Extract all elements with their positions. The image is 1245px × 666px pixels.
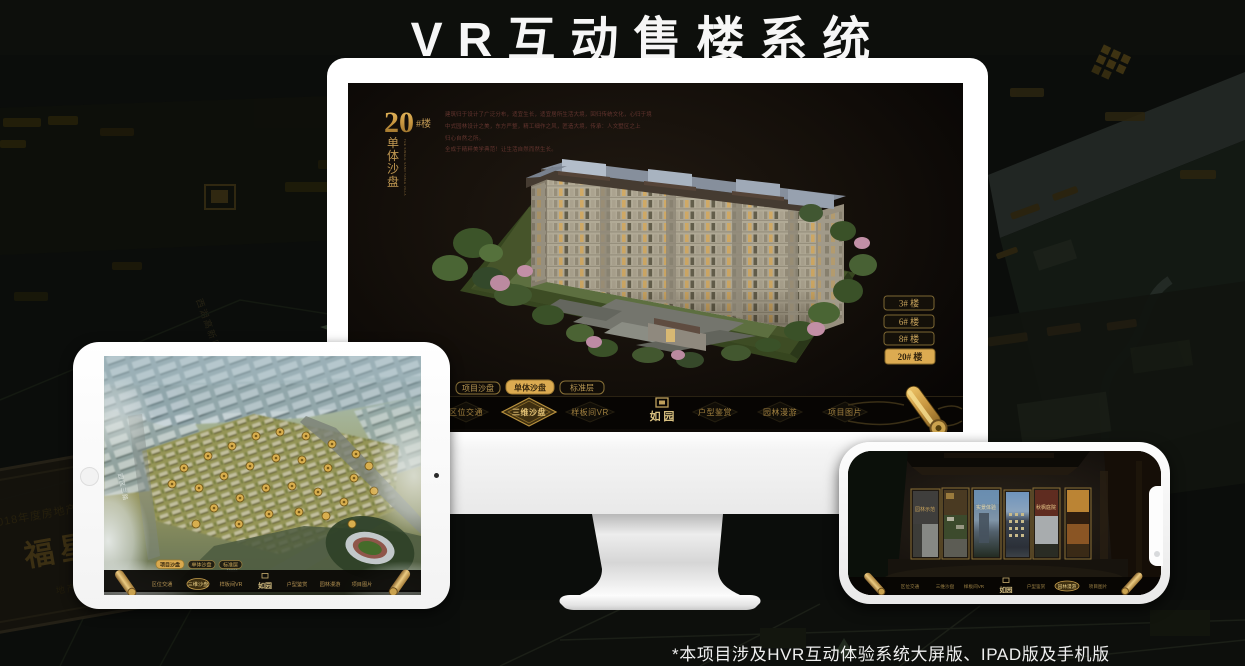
svg-text:归心自然之所。: 归心自然之所。	[445, 134, 484, 142]
svg-text:三维沙盘: 三维沙盘	[512, 407, 546, 417]
svg-text:单体沙盘: 单体沙盘	[514, 383, 546, 393]
svg-text:三维沙盘: 三维沙盘	[188, 580, 209, 588]
svg-text:秋枫庭院: 秋枫庭院	[1036, 504, 1056, 511]
svg-text:3# 楼: 3# 楼	[899, 298, 919, 309]
svg-text:三维沙盘: 三维沙盘	[936, 583, 955, 590]
svg-text:标准层: 标准层	[570, 383, 594, 393]
svg-text:项目沙盘: 项目沙盘	[160, 562, 180, 569]
svg-text:如 园: 如 园	[650, 409, 675, 423]
svg-text:20# 楼: 20# 楼	[898, 351, 923, 362]
svg-text:THE SINGLE SAND TABLE VILLA: THE SINGLE SAND TABLE VILLA	[403, 139, 407, 196]
svg-text:中式园林设计之美，东方严整，精工细作之风，匠造大境，传承：人: 中式园林设计之美，东方严整，精工细作之风，匠造大境，传承：人文墅区之上	[445, 122, 641, 130]
svg-text:区位交通: 区位交通	[152, 580, 174, 588]
svg-text:户型鉴赏: 户型鉴赏	[1027, 583, 1046, 590]
svg-text:园林漫游: 园林漫游	[320, 580, 341, 588]
svg-text:6# 楼: 6# 楼	[899, 316, 919, 327]
svg-text:项目图片: 项目图片	[828, 407, 862, 417]
svg-text:建筑归于设计了广泛分布，适宜生长，适宜居所生活大境，回归传统: 建筑归于设计了广泛分布，适宜生长，适宜居所生活大境，回归传统文化，心归于境	[445, 110, 652, 118]
svg-text:沙: 沙	[387, 162, 399, 176]
svg-text:盘: 盘	[387, 174, 399, 189]
svg-text:如园: 如园	[258, 581, 272, 590]
svg-text:样板间VR: 样板间VR	[571, 407, 609, 417]
svg-text:项目图片: 项目图片	[1089, 583, 1108, 590]
svg-text:户型鉴赏: 户型鉴赏	[698, 407, 732, 417]
svg-text:户型鉴赏: 户型鉴赏	[287, 580, 308, 588]
svg-text:园林漫游: 园林漫游	[1058, 583, 1077, 590]
svg-text:园林漫游: 园林漫游	[763, 407, 797, 417]
svg-text:区位交通: 区位交通	[449, 407, 483, 417]
svg-text:实景体验: 实景体验	[976, 504, 996, 511]
svg-text:#楼: #楼	[416, 117, 431, 130]
svg-text:项目沙盘: 项目沙盘	[462, 383, 494, 393]
svg-text:体: 体	[387, 149, 399, 163]
svg-text:园林示范: 园林示范	[915, 506, 935, 513]
svg-text:项目图片: 项目图片	[352, 580, 373, 588]
svg-text:如园: 如园	[1000, 585, 1014, 594]
svg-text:8# 楼: 8# 楼	[899, 333, 919, 344]
svg-text:单: 单	[387, 136, 399, 150]
svg-text:20: 20	[384, 106, 414, 139]
svg-text:样板间VR: 样板间VR	[220, 580, 243, 588]
svg-text:区位交通: 区位交通	[901, 583, 920, 590]
svg-text:全成于精粹美学典范！让生活自然而然生长。: 全成于精粹美学典范！让生活自然而然生长。	[445, 145, 557, 153]
svg-text:样板间VR: 样板间VR	[964, 583, 985, 590]
svg-text:单体沙盘: 单体沙盘	[191, 562, 211, 569]
